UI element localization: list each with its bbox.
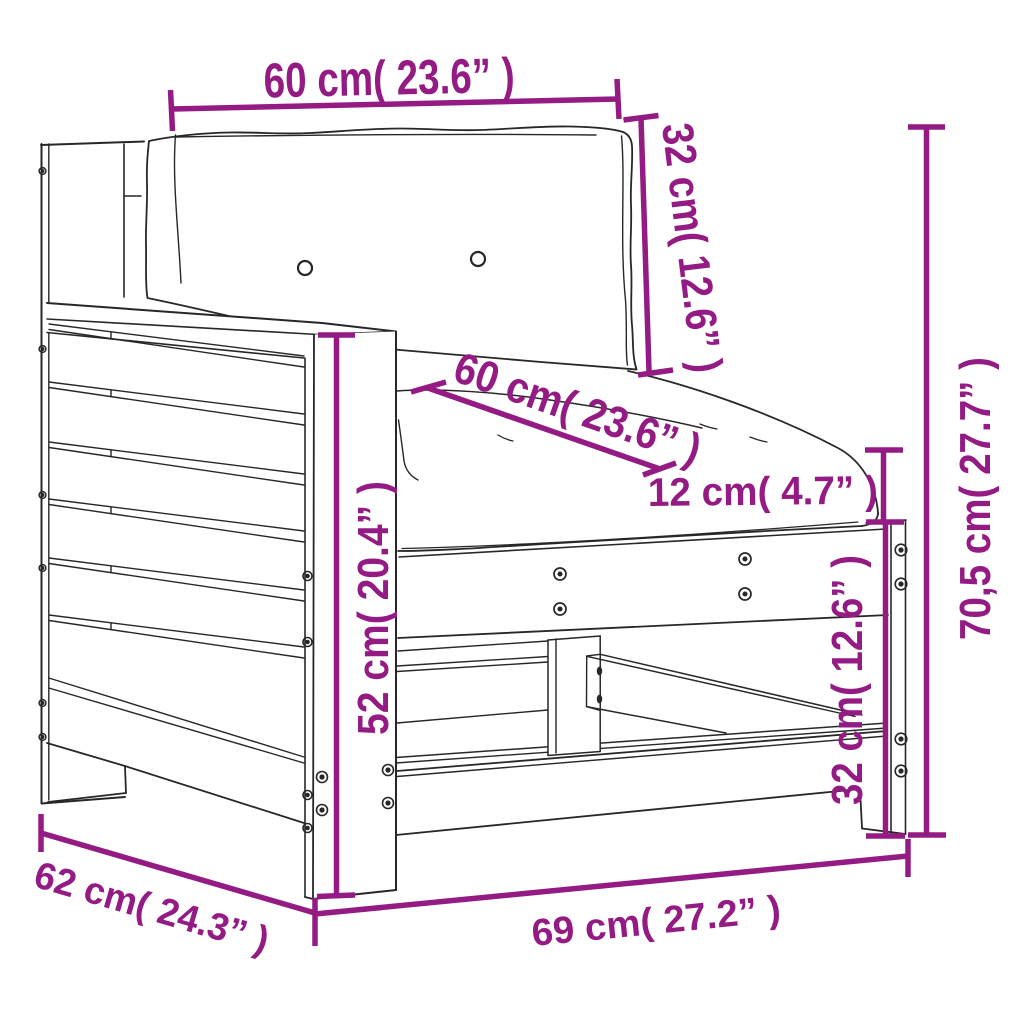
svg-text:52 cm( 20.4” ): 52 cm( 20.4” ) [349,481,398,735]
svg-text:60 cm( 23.6” ): 60 cm( 23.6” ) [263,49,515,109]
svg-text:12 cm( 4.7” ): 12 cm( 4.7” ) [648,469,878,515]
svg-text:70,5 cm( 27.7” ): 70,5 cm( 27.7” ) [951,357,1000,640]
svg-text:32 cm( 12.6” ): 32 cm( 12.6” ) [823,555,872,805]
